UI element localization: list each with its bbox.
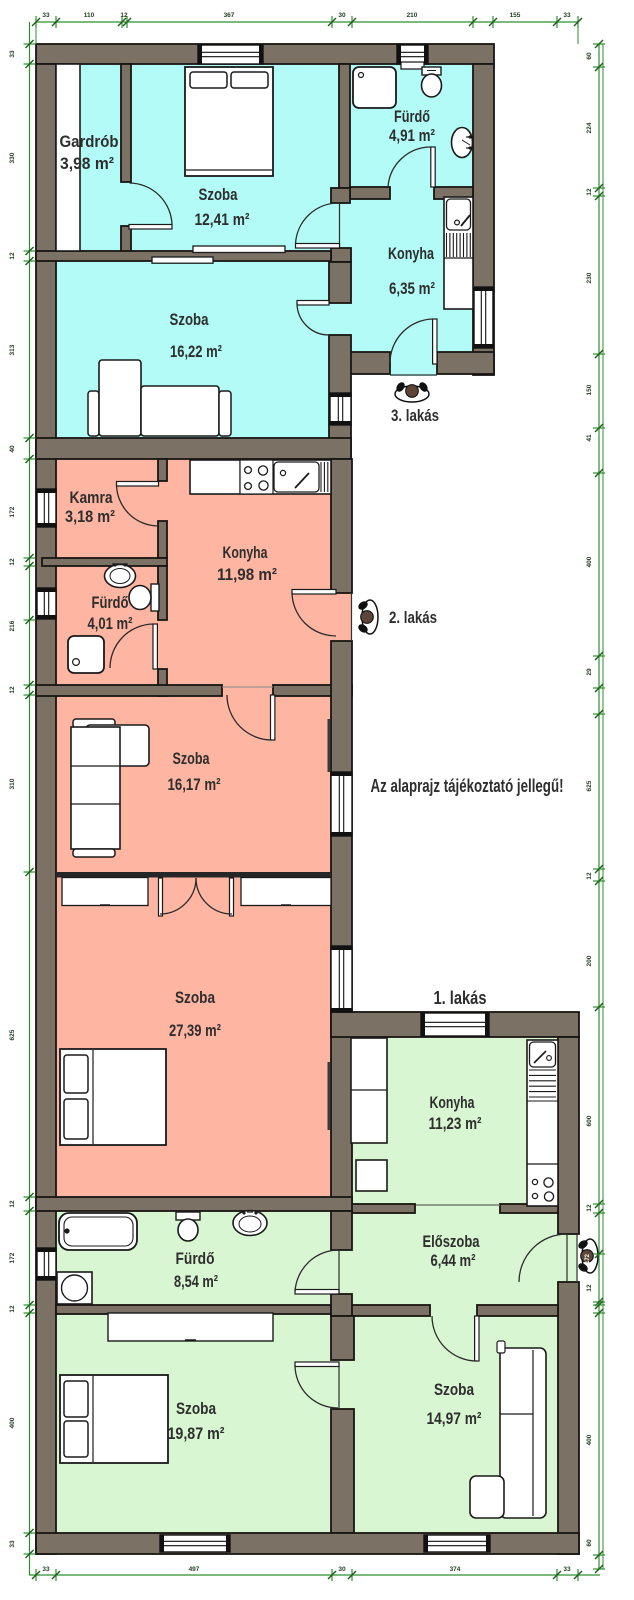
- svg-text:33: 33: [563, 1566, 571, 1573]
- svg-text:4,91 m²: 4,91 m²: [389, 126, 435, 145]
- svg-text:Kamra: Kamra: [70, 488, 113, 507]
- svg-text:12: 12: [9, 558, 16, 566]
- svg-text:3. lakás: 3. lakás: [391, 406, 439, 425]
- svg-text:625: 625: [9, 1029, 16, 1040]
- svg-text:6,44 m²: 6,44 m²: [431, 1251, 476, 1270]
- svg-text:150: 150: [586, 384, 593, 395]
- svg-text:497: 497: [189, 1566, 200, 1573]
- svg-text:6,35 m²: 6,35 m²: [389, 279, 435, 298]
- svg-text:Konyha: Konyha: [223, 543, 268, 562]
- svg-text:172: 172: [9, 1252, 16, 1263]
- svg-text:12: 12: [9, 686, 16, 694]
- svg-text:313: 313: [9, 344, 16, 355]
- svg-text:4,01 m²: 4,01 m²: [88, 614, 133, 633]
- svg-text:30: 30: [338, 1566, 346, 1573]
- svg-text:Az alaprajz tájékoztató jelleg: Az alaprajz tájékoztató jellegű!: [371, 776, 564, 796]
- svg-text:3,98 m²: 3,98 m²: [60, 154, 114, 173]
- svg-text:29: 29: [586, 668, 593, 676]
- svg-text:12,41 m²: 12,41 m²: [195, 210, 250, 229]
- svg-text:400: 400: [586, 556, 593, 567]
- svg-text:11,98 m²: 11,98 m²: [217, 565, 277, 584]
- svg-text:216: 216: [9, 620, 16, 631]
- svg-text:Konyha: Konyha: [430, 1093, 475, 1112]
- svg-text:210: 210: [407, 12, 418, 19]
- svg-text:33: 33: [9, 1540, 16, 1548]
- svg-text:33: 33: [9, 50, 16, 58]
- svg-text:230: 230: [586, 272, 593, 283]
- svg-text:Szoba: Szoba: [175, 988, 215, 1007]
- svg-text:1. lakás: 1. lakás: [434, 988, 487, 1008]
- svg-text:12: 12: [9, 1200, 16, 1208]
- svg-text:200: 200: [586, 955, 593, 966]
- svg-text:Szoba: Szoba: [170, 310, 209, 329]
- svg-text:8,54 m²: 8,54 m²: [174, 1272, 218, 1291]
- svg-text:Szoba: Szoba: [173, 749, 210, 768]
- svg-text:12: 12: [9, 252, 16, 260]
- svg-text:2. lakás: 2. lakás: [389, 608, 437, 627]
- svg-text:3,18 m²: 3,18 m²: [65, 507, 115, 526]
- svg-text:172: 172: [585, 1253, 591, 1264]
- svg-text:110: 110: [84, 12, 95, 19]
- svg-text:367: 367: [224, 12, 235, 19]
- svg-text:224: 224: [586, 122, 593, 133]
- svg-text:19,87 m²: 19,87 m²: [168, 1424, 225, 1443]
- svg-text:12: 12: [586, 1204, 593, 1212]
- svg-text:Fürdő: Fürdő: [92, 593, 129, 612]
- svg-text:Szoba: Szoba: [176, 1399, 216, 1418]
- svg-text:14,97 m²: 14,97 m²: [427, 1409, 482, 1428]
- svg-text:Szoba: Szoba: [199, 185, 238, 204]
- svg-text:16,17 m²: 16,17 m²: [168, 775, 221, 794]
- svg-text:60: 60: [586, 1539, 593, 1547]
- svg-text:400: 400: [9, 1417, 16, 1428]
- svg-text:Konyha: Konyha: [388, 244, 434, 263]
- svg-text:12: 12: [9, 1305, 16, 1313]
- svg-text:12: 12: [586, 188, 593, 196]
- svg-text:33: 33: [42, 12, 50, 19]
- svg-text:172: 172: [9, 506, 16, 517]
- svg-text:400: 400: [586, 1434, 593, 1445]
- svg-text:Gardrób: Gardrób: [60, 132, 119, 151]
- svg-text:27,39 m²: 27,39 m²: [169, 1021, 221, 1040]
- svg-text:41: 41: [586, 434, 593, 442]
- svg-text:330: 330: [9, 152, 16, 163]
- svg-text:16,22 m²: 16,22 m²: [170, 342, 222, 361]
- svg-text:Előszoba: Előszoba: [423, 1232, 480, 1251]
- svg-text:40: 40: [9, 445, 16, 453]
- svg-text:60: 60: [586, 52, 593, 60]
- svg-text:155: 155: [510, 12, 521, 19]
- svg-text:12: 12: [586, 1284, 593, 1292]
- svg-text:12: 12: [586, 872, 593, 880]
- svg-text:11,23 m²: 11,23 m²: [429, 1114, 482, 1133]
- svg-text:33: 33: [42, 1566, 50, 1573]
- svg-text:33: 33: [563, 12, 571, 19]
- svg-text:374: 374: [450, 1566, 461, 1573]
- svg-text:Szoba: Szoba: [434, 1380, 474, 1399]
- svg-text:12: 12: [120, 12, 128, 19]
- svg-text:310: 310: [9, 778, 16, 789]
- svg-text:Fürdő: Fürdő: [176, 1249, 215, 1268]
- svg-text:30: 30: [338, 12, 346, 19]
- svg-text:600: 600: [586, 1115, 593, 1126]
- svg-text:625: 625: [586, 780, 593, 791]
- svg-text:Fürdő: Fürdő: [394, 107, 430, 126]
